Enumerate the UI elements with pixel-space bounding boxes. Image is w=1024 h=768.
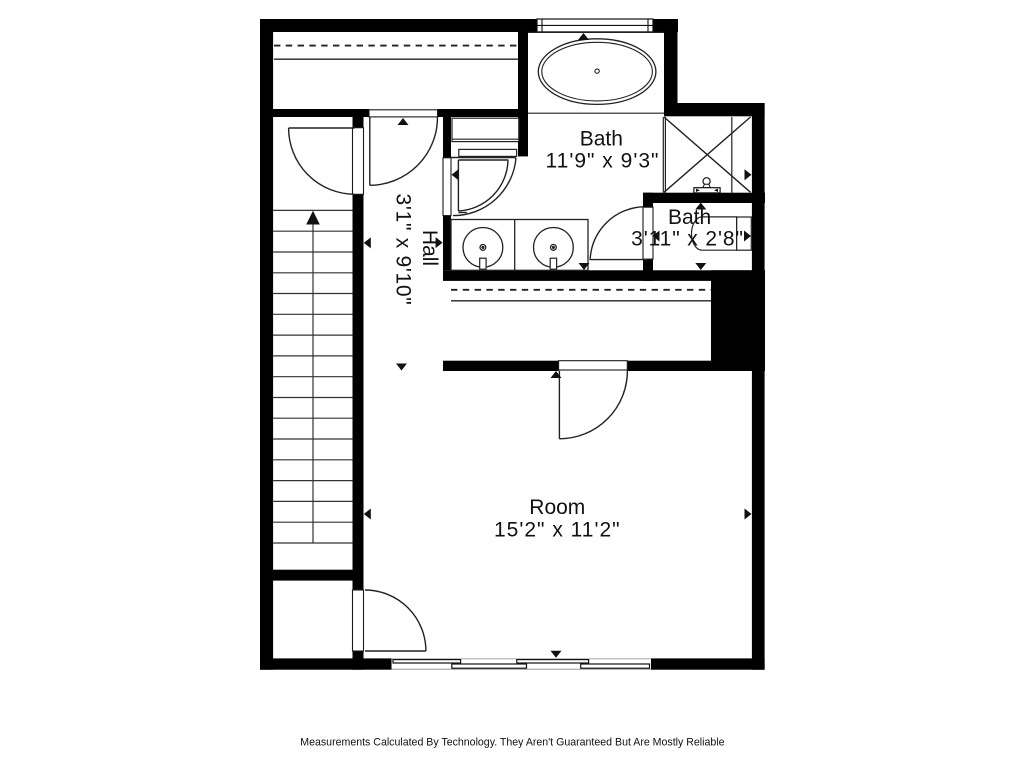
svg-text:3'1" x 9'10": 3'1" x 9'10" [392, 194, 415, 306]
svg-text:Bath: Bath [668, 206, 711, 229]
svg-text:11'9" x 9'3": 11'9" x 9'3" [546, 150, 660, 173]
svg-text:Measurements Calculated By Tec: Measurements Calculated By Technology. T… [300, 736, 724, 748]
svg-text:3'11" x 2'8": 3'11" x 2'8" [631, 228, 744, 251]
svg-text:Room: Room [529, 496, 585, 519]
svg-text:Hall: Hall [418, 230, 441, 266]
svg-text:Bath: Bath [580, 127, 623, 150]
svg-text:15'2" x 11'2": 15'2" x 11'2" [494, 518, 621, 541]
